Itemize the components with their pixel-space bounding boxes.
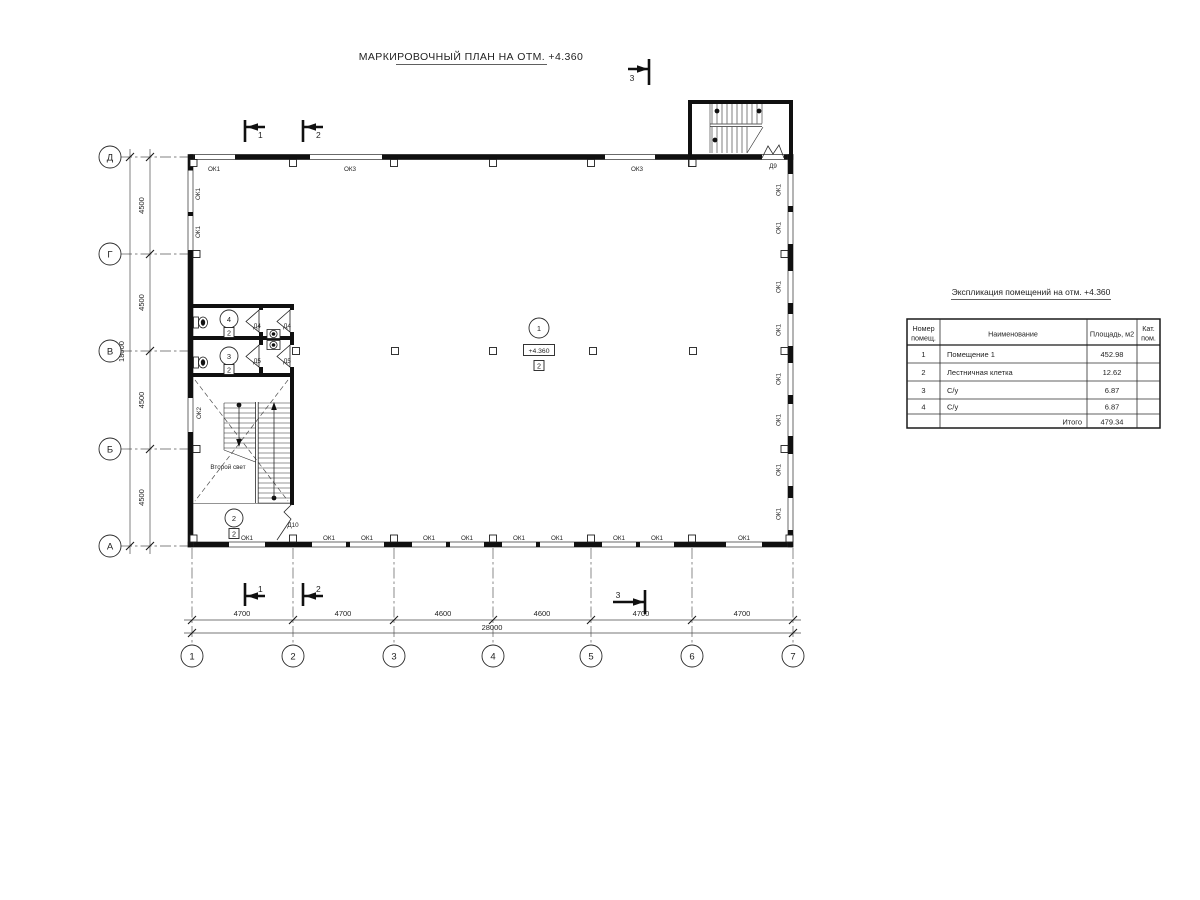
axis-letter: В: [107, 347, 113, 358]
toilet-fixture: [194, 317, 208, 328]
dim-4500: 4500: [137, 294, 146, 311]
elevation-mark: +4.360: [529, 348, 550, 355]
window-mark: ОК1: [208, 166, 221, 173]
room-category: 2: [227, 366, 231, 375]
axis-bubbles: Д Г В Б А 1 2 3 4 5 6 7: [99, 146, 804, 667]
drawing-title: МАРКИРОВОЧНЫЙ ПЛАН НА ОТМ. +4.360: [359, 50, 584, 63]
cell-name: С/у: [947, 403, 959, 412]
cell-name: С/у: [947, 386, 959, 395]
axis-letter: Б: [107, 445, 113, 456]
sink-fixture: [267, 330, 280, 339]
window-mark: ОК1: [776, 280, 783, 293]
door-mark: Д5: [283, 358, 291, 365]
dim-4500: 4500: [137, 392, 146, 409]
dim-4700: 4700: [734, 609, 751, 618]
bottom-dimensions: 4700 4700 4600 4600 4700 4700 28000: [184, 609, 801, 637]
axis-number: 5: [588, 652, 593, 663]
cell-name: Помещение 1: [947, 350, 995, 359]
dim-4500: 4500: [137, 197, 146, 214]
window-mark: ОК1: [776, 413, 783, 426]
door-mark: Д9: [769, 163, 777, 170]
table-row: 2 Лестничная клетка 12.62: [921, 368, 1121, 377]
room-category: 2: [232, 530, 236, 539]
room-number: 2: [232, 514, 236, 523]
door-mark: Д5: [253, 358, 261, 365]
table-total-row: Итого 479.34: [1062, 418, 1123, 427]
stair-treads: [712, 104, 762, 124]
section-number: 3: [616, 590, 621, 600]
table-row: 3 С/у 6.87: [921, 386, 1119, 395]
table-header-num: помещ.: [911, 334, 936, 343]
window-mark: ОК1: [776, 323, 783, 336]
window-mark: ОК1: [241, 535, 254, 542]
dim-4700: 4700: [234, 609, 251, 618]
drawing-sheet: МАРКИРОВОЧНЫЙ ПЛАН НА ОТМ. +4.360 4500 4…: [0, 0, 1200, 900]
total-label: Итого: [1062, 418, 1082, 427]
door-mark: Д4: [283, 323, 291, 330]
main-hall-tag: 1 +4.360 2: [524, 318, 555, 371]
axis-number: 4: [490, 652, 495, 663]
table-header-cat: пом.: [1141, 334, 1156, 343]
window-mark: ОК2: [196, 406, 203, 419]
window-mark: ОК1: [651, 535, 664, 542]
table-header-num: Номер: [912, 324, 934, 333]
sink-fixture: [267, 341, 280, 350]
total-value: 479.34: [1101, 418, 1124, 427]
axis-number: 3: [391, 652, 396, 663]
axis-number: 6: [689, 652, 694, 663]
window-mark: ОК1: [738, 535, 751, 542]
cell-num: 3: [921, 386, 925, 395]
table-title: Экспликация помещений на отм. +4.360: [952, 287, 1111, 297]
cell-name: Лестничная клетка: [947, 368, 1014, 377]
window-mark: ОК1: [613, 535, 626, 542]
room-number: 3: [227, 352, 231, 361]
table-row: 1 Помещение 1 452.98: [921, 350, 1123, 359]
window-mark: ОК1: [776, 221, 783, 234]
left-dimensions: 4500 4500 4500 4500 18000: [117, 149, 154, 554]
table-header-name: Наименование: [988, 330, 1038, 339]
window-mark: ОК1: [423, 535, 436, 542]
door-mark: Д10: [287, 522, 299, 529]
dim-4700: 4700: [335, 609, 352, 618]
floor-plan-drawing: МАРКИРОВОЧНЫЙ ПЛАН НА ОТМ. +4.360 4500 4…: [0, 0, 1200, 900]
cell-num: 2: [921, 368, 925, 377]
dim-4600: 4600: [435, 609, 452, 618]
cell-area: 12.62: [1103, 368, 1122, 377]
room-schedule: Экспликация помещений на отм. +4.360 Ном…: [907, 287, 1160, 428]
section-number: 2: [316, 130, 321, 140]
dim-4600: 4600: [534, 609, 551, 618]
room-category: 2: [537, 362, 541, 371]
cell-area: 6.87: [1105, 386, 1120, 395]
axis-number: 1: [189, 652, 194, 663]
cell-area: 452.98: [1101, 350, 1124, 359]
window-mark: ОК1: [551, 535, 564, 542]
table-header-area: Площадь, м2: [1090, 330, 1134, 339]
window-mark: ОК1: [323, 535, 336, 542]
door-mark: Д4: [253, 323, 261, 330]
cell-num: 4: [921, 403, 925, 412]
window-mark: ОК1: [776, 507, 783, 520]
axis-lines: [121, 157, 793, 644]
window-mark: ОК1: [776, 372, 783, 385]
window-mark: ОК3: [344, 166, 357, 173]
stairwell: Второй свет Д10 2 2: [193, 377, 299, 540]
section-number: 1: [258, 584, 263, 594]
table-row: 4 С/у 6.87: [921, 403, 1119, 412]
window-mark: ОК1: [776, 463, 783, 476]
window-mark: ОК1: [361, 535, 374, 542]
axis-number: 2: [290, 652, 295, 663]
dim-4700: 4700: [633, 609, 650, 618]
section-number: 1: [258, 130, 263, 140]
room-number: 1: [537, 324, 541, 333]
void-label: Второй свет: [210, 463, 245, 471]
section-marks: 1 2 3 1 2 3: [245, 59, 649, 614]
room-category: 2: [227, 329, 231, 338]
section-number: 3: [630, 73, 635, 83]
axis-letter: Г: [107, 250, 112, 261]
axis-number: 7: [790, 652, 795, 663]
window-mark: ОК1: [513, 535, 526, 542]
toilet-fixture: [194, 357, 208, 368]
column-markers: [190, 160, 793, 543]
window-mark: ОК3: [631, 166, 644, 173]
window-mark: ОК1: [195, 187, 202, 200]
cell-area: 6.87: [1105, 403, 1120, 412]
sanitary-block: Д4 Д4 Д5 Д5 4 2 3 2: [190, 304, 294, 377]
room-number: 4: [227, 315, 231, 324]
cell-num: 1: [921, 350, 925, 359]
section-number: 2: [316, 584, 321, 594]
dim-4500: 4500: [137, 489, 146, 506]
window-mark: ОК1: [195, 225, 202, 238]
table-header-cat: Кат.: [1142, 324, 1155, 333]
axis-letter: А: [107, 542, 114, 553]
window-mark: ОК1: [461, 535, 474, 542]
window-mark: ОК1: [776, 183, 783, 196]
axis-letter: Д: [107, 153, 114, 164]
dim-28000: 28000: [482, 623, 503, 632]
